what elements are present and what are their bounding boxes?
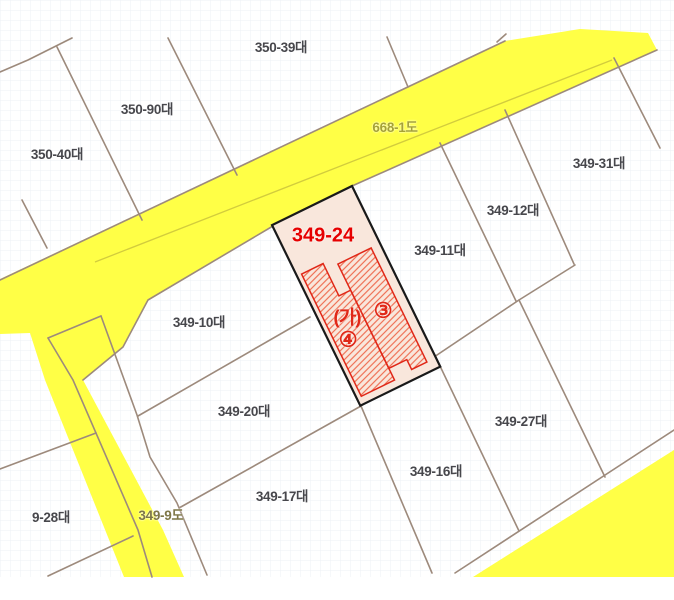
parcel-label-349-16: 349-16대 <box>410 460 462 480</box>
map-canvas[interactable] <box>0 0 674 600</box>
parcel-label-349-17: 349-17대 <box>256 485 308 505</box>
building-label-4: ④ <box>339 328 358 353</box>
building-label-ga: (가) <box>333 303 360 330</box>
parcel-label-349-20: 349-20대 <box>218 400 270 420</box>
parcel-label-349-12: 349-12대 <box>487 199 539 219</box>
parcel-label-350-40: 350-40대 <box>31 143 83 163</box>
parcel-label-349-27: 349-27대 <box>495 410 547 430</box>
parcel-label-350-90: 350-90대 <box>121 98 173 118</box>
road-label-668-1: 668-1도 <box>372 116 417 136</box>
parcel-label-349-11: 349-11대 <box>414 239 466 259</box>
road-label-349-9: 349-9도 <box>138 504 183 524</box>
highlighted-parcel-label-349-24: 349-24 <box>292 225 354 248</box>
parcel-label-349-31: 349-31대 <box>573 152 625 172</box>
parcel-label-349-10: 349-10대 <box>173 311 225 331</box>
cadastral-map: 350-39대 350-90대 350-40대 668-1도 349-31대 3… <box>0 0 674 600</box>
parcel-label-349-28: 9-28대 <box>32 506 70 526</box>
parcel-label-350-39: 350-39대 <box>255 36 307 56</box>
building-label-3: ③ <box>374 299 393 324</box>
